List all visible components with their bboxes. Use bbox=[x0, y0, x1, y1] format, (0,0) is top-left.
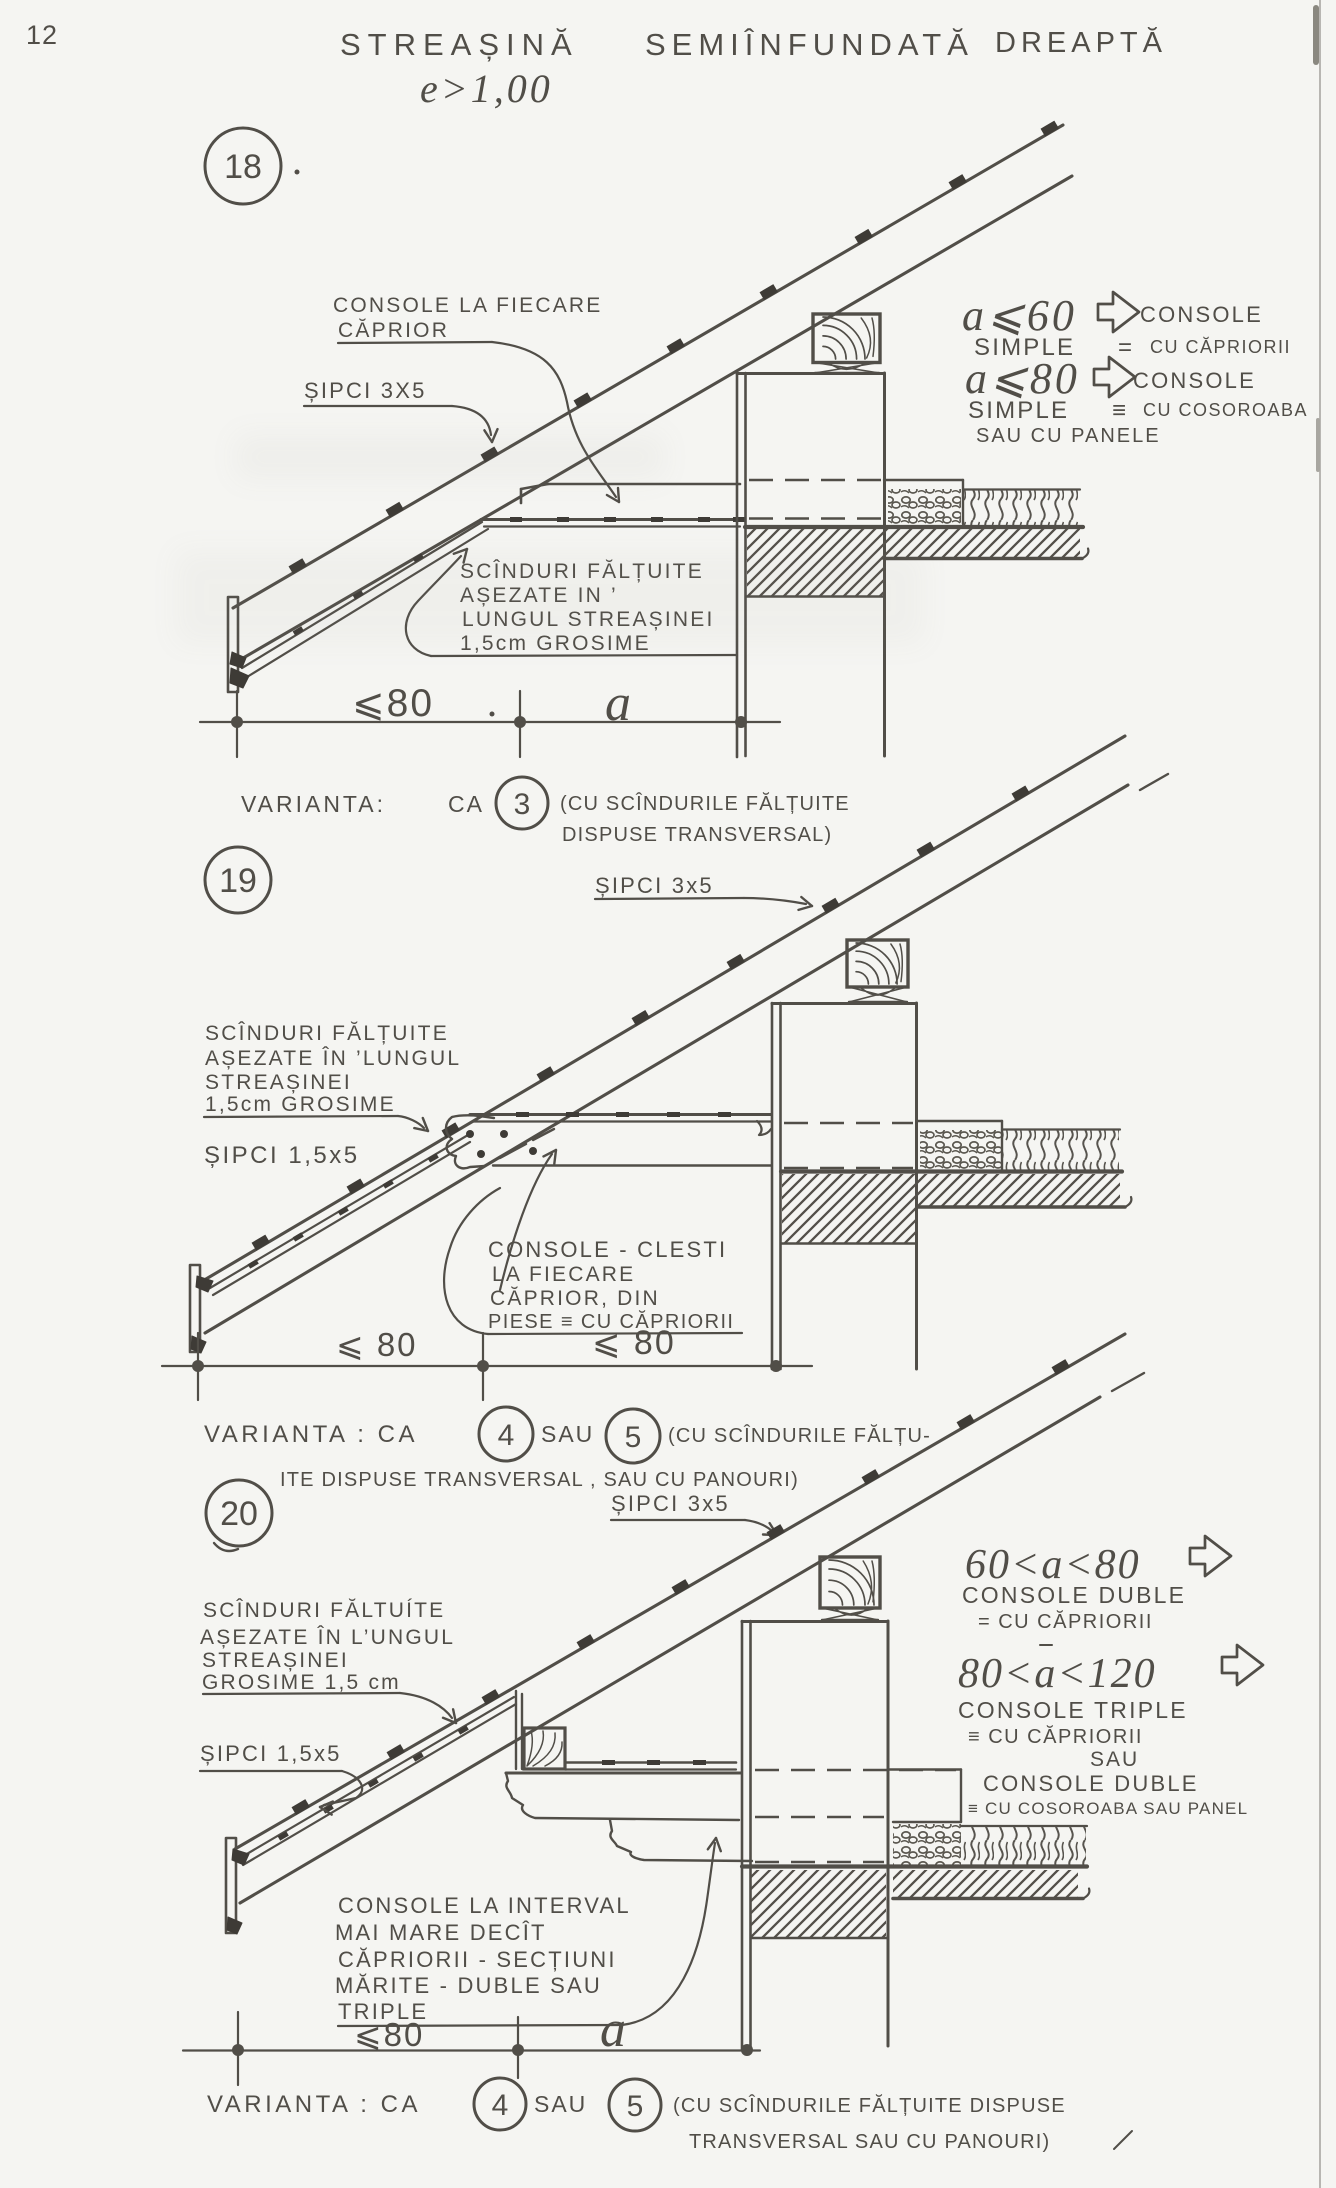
svg-text:e>1,00: e>1,00 bbox=[420, 66, 553, 111]
svg-text:TRIPLE: TRIPLE bbox=[338, 1999, 428, 2024]
svg-text:a⩽60: a⩽60 bbox=[962, 291, 1077, 340]
svg-text:(CU SCÎNDURILE FĂLȚUITE: (CU SCÎNDURILE FĂLȚUITE bbox=[560, 792, 850, 815]
svg-text:CĂPRIOR: CĂPRIOR bbox=[338, 319, 449, 342]
svg-text:SCÎNDURI FĂLTUÍTE: SCÎNDURI FĂLTUÍTE bbox=[203, 1599, 445, 1622]
svg-text:⩽ 80: ⩽ 80 bbox=[336, 1326, 418, 1363]
svg-text:SAU: SAU bbox=[541, 1421, 594, 1447]
svg-text:CONSOLE TRIPLE: CONSOLE TRIPLE bbox=[958, 1697, 1188, 1723]
svg-text:MĂRITE - DUBLE SAU: MĂRITE - DUBLE SAU bbox=[335, 1973, 602, 1998]
svg-text:GROSIME 1,5 cm: GROSIME 1,5 cm bbox=[202, 1671, 401, 1694]
svg-text:SIMPLE: SIMPLE bbox=[968, 397, 1069, 424]
svg-text:STREAȘINĂ: STREAȘINĂ bbox=[340, 27, 579, 62]
svg-text:19: 19 bbox=[219, 862, 257, 900]
svg-text:DISPUSE TRANSVERSAL): DISPUSE TRANSVERSAL) bbox=[562, 824, 832, 846]
svg-text:TRANSVERSAL SAU CU PANOURI): TRANSVERSAL SAU CU PANOURI) bbox=[689, 2131, 1050, 2153]
svg-text:SCÎNDURI FĂLȚUITE: SCÎNDURI FĂLȚUITE bbox=[205, 1022, 449, 1045]
svg-text:CONSOLE LA FIECARE: CONSOLE LA FIECARE bbox=[333, 294, 603, 317]
svg-text:≡ CU COSOROABA SAU PANEL: ≡ CU COSOROABA SAU PANEL bbox=[968, 1799, 1248, 1818]
svg-text:ȘIPCI 1,5x5: ȘIPCI 1,5x5 bbox=[204, 1142, 360, 1169]
svg-text:SEMIÎNFUNDATĂ: SEMIÎNFUNDATĂ bbox=[645, 27, 974, 62]
svg-text:(CU SCÎNDURILE FĂLȚUITE DISPUS: (CU SCÎNDURILE FĂLȚUITE DISPUSE bbox=[673, 2094, 1066, 2117]
svg-text:STREAȘINEI: STREAȘINEI bbox=[202, 1649, 349, 1672]
svg-text:⩽80: ⩽80 bbox=[352, 682, 434, 725]
svg-text:20: 20 bbox=[220, 1495, 258, 1533]
svg-text:80<a<120: 80<a<120 bbox=[958, 1651, 1157, 1697]
svg-text:1,5cm GROSIME: 1,5cm GROSIME bbox=[205, 1093, 396, 1116]
svg-text:5: 5 bbox=[625, 1421, 642, 1454]
svg-text:12: 12 bbox=[26, 20, 58, 50]
svg-text:CU CĂPRIORII: CU CĂPRIORII bbox=[1150, 337, 1291, 357]
svg-text:18: 18 bbox=[224, 148, 262, 186]
svg-text:3: 3 bbox=[514, 788, 531, 821]
svg-text:SAU: SAU bbox=[534, 2091, 587, 2117]
svg-text:CONSOLE: CONSOLE bbox=[1133, 368, 1256, 393]
svg-text:4: 4 bbox=[492, 2089, 509, 2122]
svg-text:ȘIPCI 3x5: ȘIPCI 3x5 bbox=[611, 1491, 730, 1516]
svg-text:STREAȘINEI: STREAȘINEI bbox=[205, 1071, 352, 1094]
svg-text:AȘEZATE ÎN L’UNGUL: AȘEZATE ÎN L’UNGUL bbox=[200, 1626, 455, 1649]
svg-text:PIESE ≡ CU CĂPRIORII: PIESE ≡ CU CĂPRIORII bbox=[488, 1310, 734, 1333]
svg-text:CONSOLE: CONSOLE bbox=[1140, 302, 1263, 327]
svg-text:5: 5 bbox=[627, 2090, 644, 2123]
svg-text:MAI MARE DECÎT: MAI MARE DECÎT bbox=[335, 1920, 547, 1945]
svg-text:CONSOLE DUBLE: CONSOLE DUBLE bbox=[983, 1771, 1199, 1796]
svg-text:CĂPRIORII - SECȚIUNI: CĂPRIORII - SECȚIUNI bbox=[338, 1947, 617, 1972]
svg-text:CU COSOROABA: CU COSOROABA bbox=[1143, 400, 1308, 420]
svg-text:AȘEZATE ÎN ’LUNGUL: AȘEZATE ÎN ’LUNGUL bbox=[205, 1047, 461, 1070]
svg-text:CONSOLE LA INTERVAL: CONSOLE LA INTERVAL bbox=[338, 1893, 631, 1918]
svg-text:a: a bbox=[605, 675, 631, 732]
svg-text:a⩽80: a⩽80 bbox=[965, 354, 1080, 403]
svg-text:(CU SCÎNDURILE FĂLȚU-: (CU SCÎNDURILE FĂLȚU- bbox=[668, 1424, 931, 1447]
svg-text:a: a bbox=[600, 2001, 626, 2058]
svg-text:4: 4 bbox=[498, 1419, 515, 1452]
svg-text:= CU CĂPRIORII: = CU CĂPRIORII bbox=[978, 1610, 1153, 1633]
svg-text:CONSOLE - CLESTI: CONSOLE - CLESTI bbox=[488, 1237, 727, 1262]
svg-text:CONSOLE DUBLE: CONSOLE DUBLE bbox=[962, 1582, 1186, 1608]
svg-text:VARIANTA : CA: VARIANTA : CA bbox=[207, 2091, 421, 2118]
svg-text:VARIANTA:: VARIANTA: bbox=[241, 791, 386, 817]
svg-text:ȘIPCI 3X5: ȘIPCI 3X5 bbox=[304, 378, 427, 403]
svg-text:≡ CU CĂPRIORII: ≡ CU CĂPRIORII bbox=[968, 1725, 1143, 1748]
svg-text:LA FIECARE: LA FIECARE bbox=[492, 1263, 635, 1286]
svg-text:CA: CA bbox=[448, 791, 484, 817]
svg-text:=: = bbox=[1118, 334, 1134, 361]
svg-text:VARIANTA : CA: VARIANTA : CA bbox=[204, 1421, 418, 1448]
svg-text:ȘIPCI 3x5: ȘIPCI 3x5 bbox=[595, 873, 714, 898]
svg-text:≡: ≡ bbox=[1112, 397, 1128, 424]
svg-text:ITE DISPUSE TRANSVERSAL , SAU: ITE DISPUSE TRANSVERSAL , SAU CU PANOURI… bbox=[280, 1469, 799, 1491]
svg-text:DREAPTĂ: DREAPTĂ bbox=[995, 26, 1167, 59]
svg-text:SAU CU PANELE: SAU CU PANELE bbox=[976, 425, 1161, 447]
svg-text:SAU: SAU bbox=[1090, 1748, 1139, 1771]
svg-text:ȘIPCI 1,5x5: ȘIPCI 1,5x5 bbox=[200, 1741, 342, 1766]
svg-text:CĂPRIOR, DIN: CĂPRIOR, DIN bbox=[490, 1287, 660, 1310]
